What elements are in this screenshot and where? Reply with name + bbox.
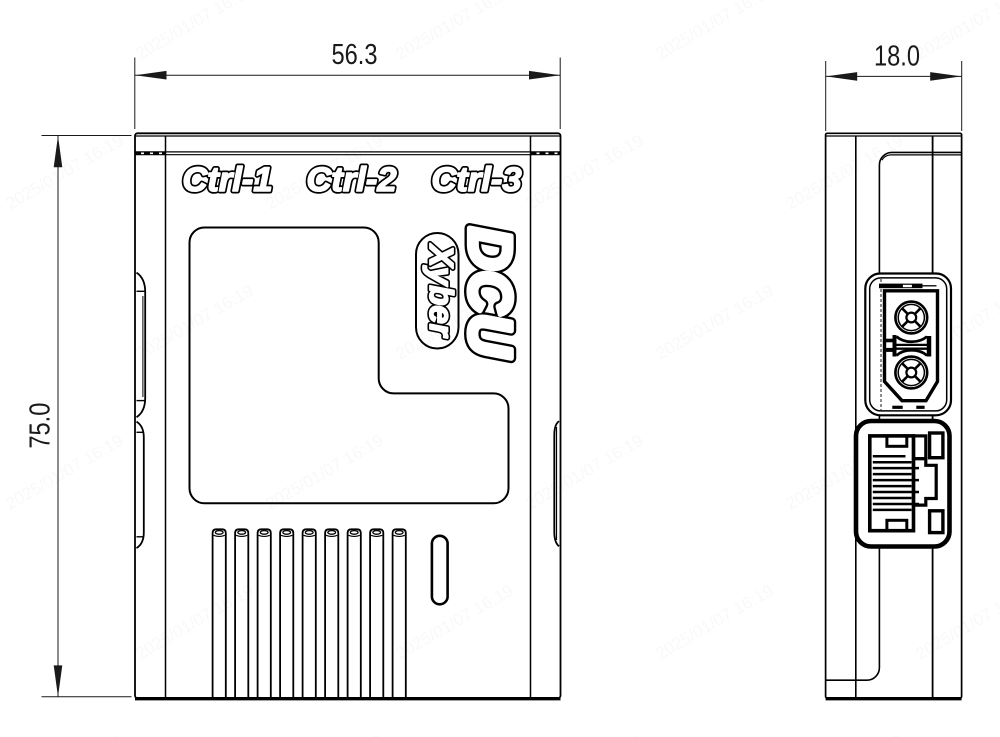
svg-text:2025/01/07 16:19: 2025/01/07 16:19 (913, 581, 1000, 664)
svg-text:2025/01/07 16:19: 2025/01/07 16:19 (263, 731, 387, 737)
svg-text:Ctrl-2: Ctrl-2 (306, 161, 396, 199)
svg-text:2025/01/07 16:19: 2025/01/07 16:19 (653, 281, 777, 364)
svg-text:2025/01/07 16:19: 2025/01/07 16:19 (523, 731, 647, 737)
svg-text:2025/01/07 16:19: 2025/01/07 16:19 (393, 0, 517, 63)
svg-text:2025/01/07 16:19: 2025/01/07 16:19 (133, 0, 257, 63)
svg-text:2025/01/07 16:19: 2025/01/07 16:19 (653, 581, 777, 664)
svg-text:2025/01/07 16:19: 2025/01/07 16:19 (3, 731, 127, 737)
svg-text:Xyber: Xyber (423, 243, 460, 339)
svg-text:Ctrl-3: Ctrl-3 (431, 161, 521, 199)
svg-text:75.0: 75.0 (24, 403, 56, 449)
svg-text:DCU: DCU (457, 227, 524, 359)
svg-text:2025/01/07 16:19: 2025/01/07 16:19 (783, 131, 907, 214)
svg-text:2025/01/07 16:19: 2025/01/07 16:19 (133, 281, 257, 364)
svg-text:2025/01/07 16:19: 2025/01/07 16:19 (393, 581, 517, 664)
svg-text:18.0: 18.0 (874, 40, 920, 72)
svg-text:2025/01/07 16:19: 2025/01/07 16:19 (653, 0, 777, 63)
svg-text:2025/01/07 16:19: 2025/01/07 16:19 (263, 431, 387, 514)
svg-text:2025/01/07 16:19: 2025/01/07 16:19 (133, 581, 257, 664)
svg-text:2025/01/07 16:19: 2025/01/07 16:19 (783, 731, 907, 737)
svg-text:2025/01/07 16:19: 2025/01/07 16:19 (3, 131, 127, 214)
svg-text:2025/01/07 16:19: 2025/01/07 16:19 (913, 0, 1000, 63)
svg-text:2025/01/07 16:19: 2025/01/07 16:19 (523, 431, 647, 514)
svg-text:2025/01/07 16:19: 2025/01/07 16:19 (523, 131, 647, 214)
svg-text:56.3: 56.3 (332, 39, 378, 71)
svg-text:Ctrl-1: Ctrl-1 (182, 161, 272, 199)
svg-text:2025/01/07 16:19: 2025/01/07 16:19 (3, 431, 127, 514)
